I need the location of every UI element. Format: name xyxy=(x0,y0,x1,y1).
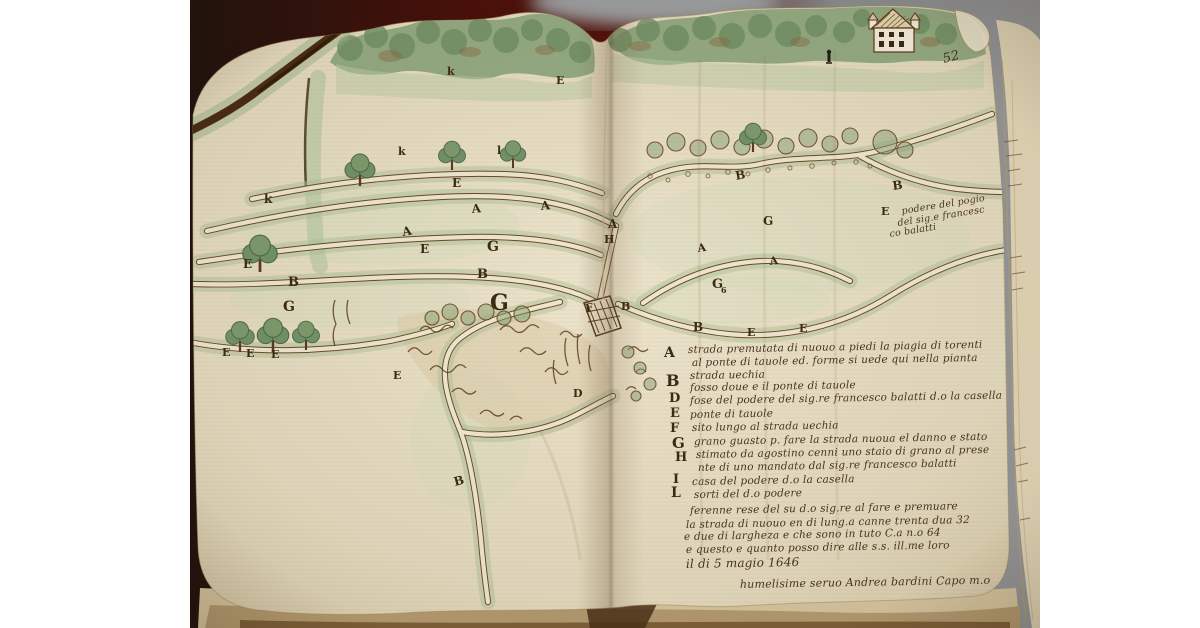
manuscript-map-photo: kEklkEAAAHAEEBGBGGEEEEDBFBG6BBGEAABEE AB… xyxy=(0,0,1200,628)
photo-vignette xyxy=(190,0,1040,628)
photo-area: kEklkEAAAHAEEBGBGGEEEEDBFBG6BBGEAABEE AB… xyxy=(190,0,1040,628)
